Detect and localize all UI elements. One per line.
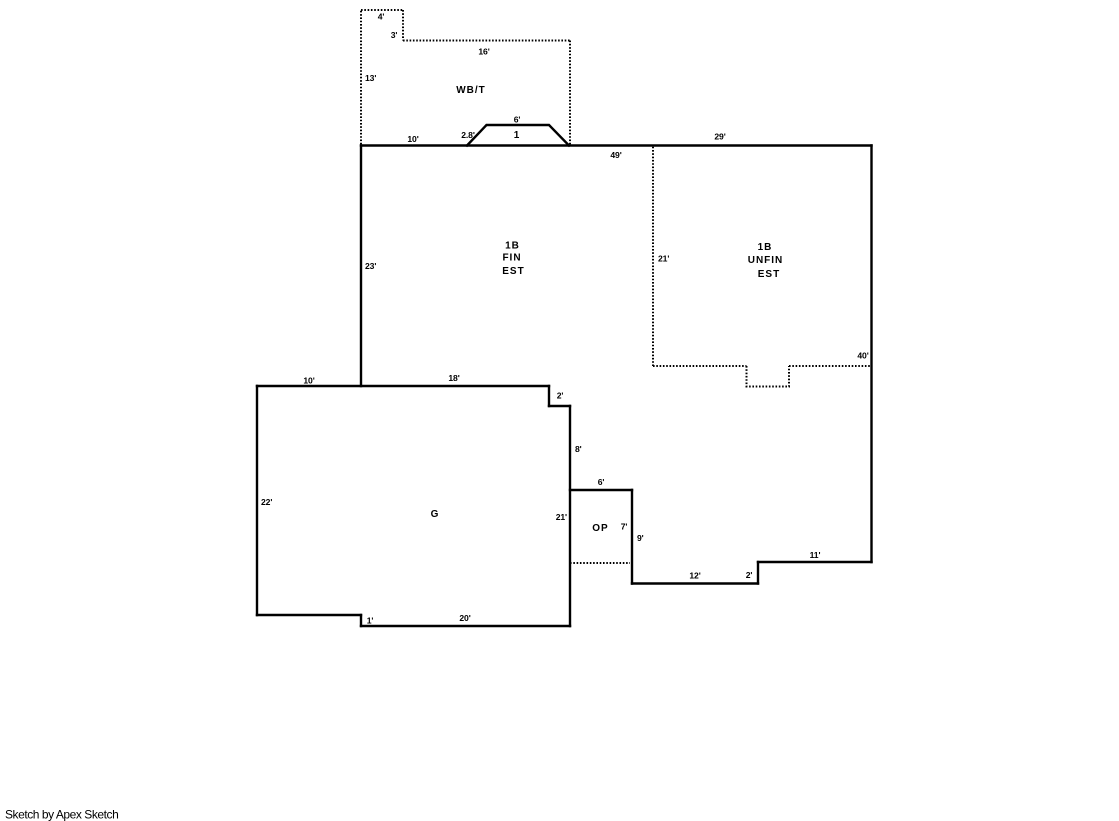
svg-text:49': 49': [610, 150, 621, 160]
svg-text:2': 2': [746, 570, 753, 580]
svg-text:8': 8': [575, 444, 582, 454]
svg-text:2.8': 2.8': [461, 130, 475, 140]
svg-text:21': 21': [556, 512, 567, 522]
svg-text:1: 1: [514, 130, 521, 141]
svg-text:Sketch by Apex Sketch: Sketch by Apex Sketch: [5, 808, 118, 821]
svg-text:WB/T: WB/T: [456, 85, 486, 96]
svg-text:UNFIN: UNFIN: [748, 255, 784, 266]
svg-text:G: G: [431, 509, 440, 520]
svg-text:EST: EST: [502, 266, 524, 277]
svg-text:1B: 1B: [758, 242, 773, 253]
svg-text:EST: EST: [758, 269, 780, 280]
svg-text:21': 21': [658, 254, 669, 264]
svg-text:9': 9': [637, 533, 644, 543]
svg-text:4': 4': [378, 12, 385, 22]
svg-text:FIN: FIN: [502, 253, 521, 264]
svg-text:3': 3': [391, 30, 398, 40]
svg-text:10': 10': [303, 376, 314, 386]
svg-text:10': 10': [407, 134, 418, 144]
svg-text:16': 16': [478, 47, 489, 57]
svg-text:6': 6': [514, 115, 521, 125]
svg-text:12': 12': [689, 571, 700, 581]
svg-text:2': 2': [557, 391, 564, 401]
svg-text:11': 11': [810, 550, 821, 560]
svg-text:22': 22': [261, 497, 272, 507]
svg-text:23': 23': [365, 261, 376, 271]
svg-text:7': 7': [621, 521, 628, 531]
svg-text:40': 40': [857, 351, 868, 361]
svg-text:1': 1': [367, 616, 374, 626]
svg-text:13': 13': [365, 73, 376, 83]
svg-text:18': 18': [448, 373, 459, 383]
svg-text:OP: OP: [592, 523, 608, 534]
svg-text:1B: 1B: [505, 241, 520, 252]
svg-text:20': 20': [459, 613, 470, 623]
svg-text:6': 6': [598, 477, 605, 487]
svg-text:29': 29': [714, 132, 725, 142]
